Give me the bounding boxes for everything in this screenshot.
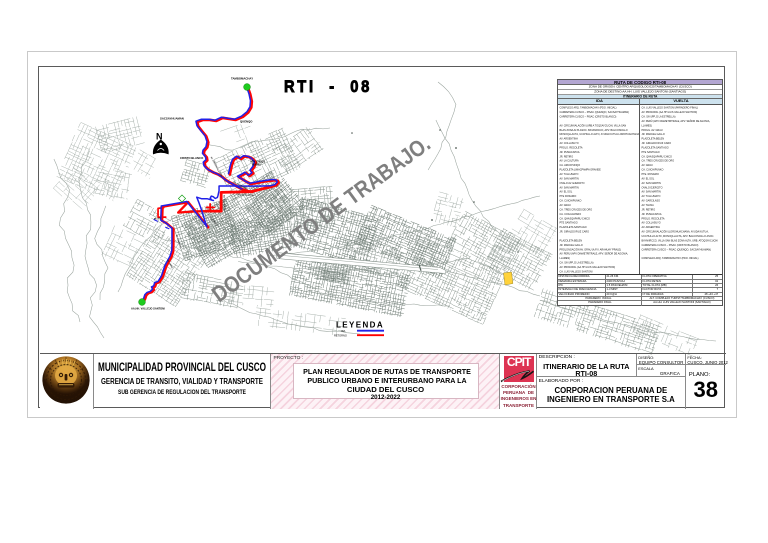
- svg-text:RTI - 08: RTI - 08: [284, 78, 372, 96]
- svg-text:QUENQO: QUENQO: [240, 120, 253, 124]
- svg-text:BUENA: BUENA: [252, 164, 261, 167]
- svg-text:AA.HH. VALLEJO SANTONI: AA.HH. VALLEJO SANTONI: [131, 307, 165, 311]
- svg-text:AV. COLLASUYO: AV. COLLASUYO: [223, 195, 227, 212]
- svg-text:TAMBOMACHAY: TAMBOMACHAY: [231, 77, 253, 81]
- svg-text:AV. LA CULTURA: AV. LA CULTURA: [238, 193, 255, 197]
- svg-text:RETORNO: RETORNO: [334, 334, 347, 338]
- svg-text:N: N: [156, 132, 163, 142]
- svg-text:CRISTO BLANCO: CRISTO BLANCO: [180, 156, 204, 160]
- svg-text:IDA: IDA: [341, 329, 346, 333]
- svg-text:LEYENDA: LEYENDA: [336, 321, 384, 330]
- svg-text:SACSAYHUAMAN: SACSAYHUAMAN: [160, 117, 184, 121]
